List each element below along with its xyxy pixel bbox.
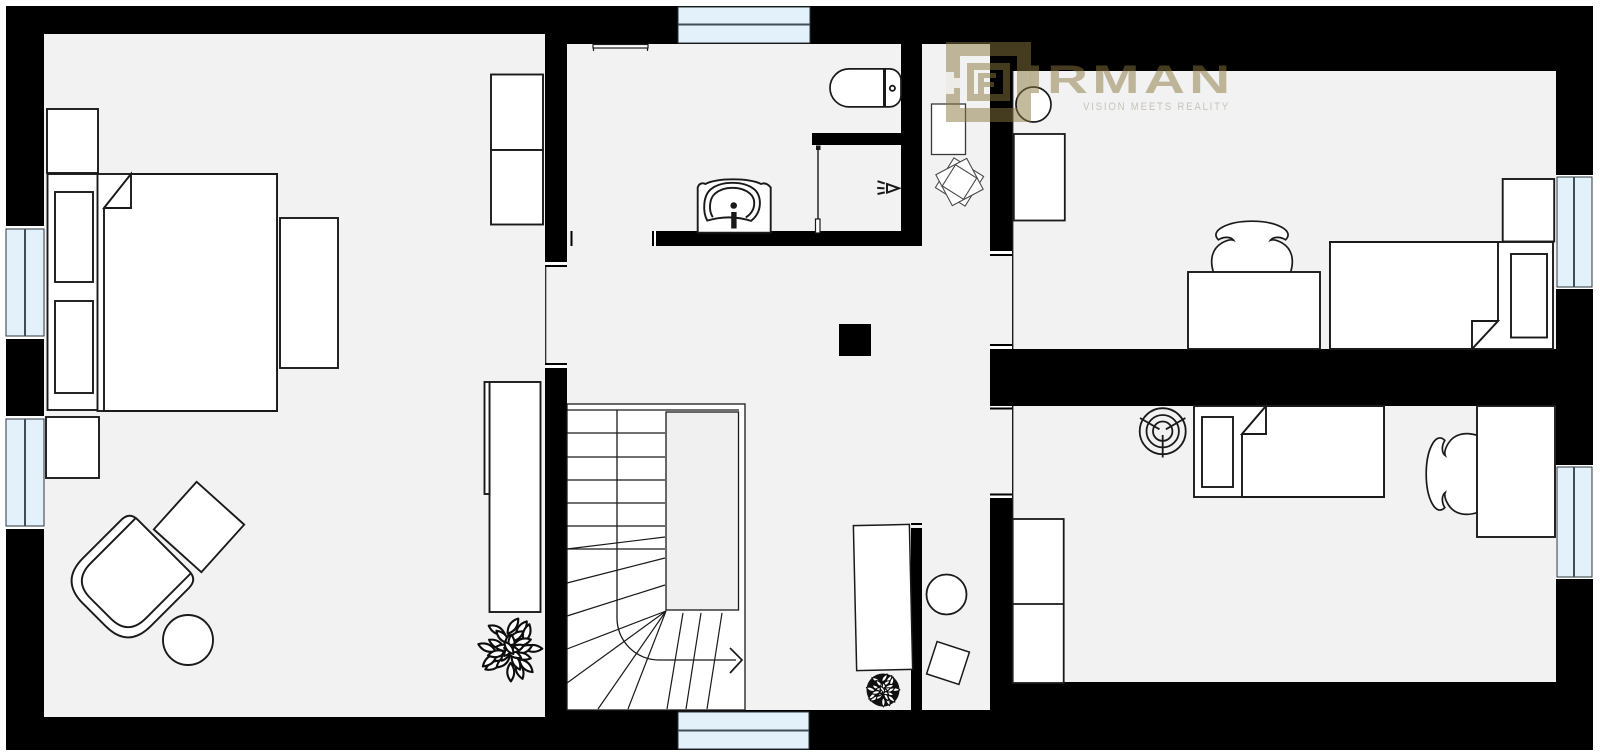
svg-text:VISION MEETS REALITY: VISION MEETS REALITY: [1083, 101, 1230, 113]
svg-text:IRMAN: IRMAN: [1027, 58, 1234, 102]
